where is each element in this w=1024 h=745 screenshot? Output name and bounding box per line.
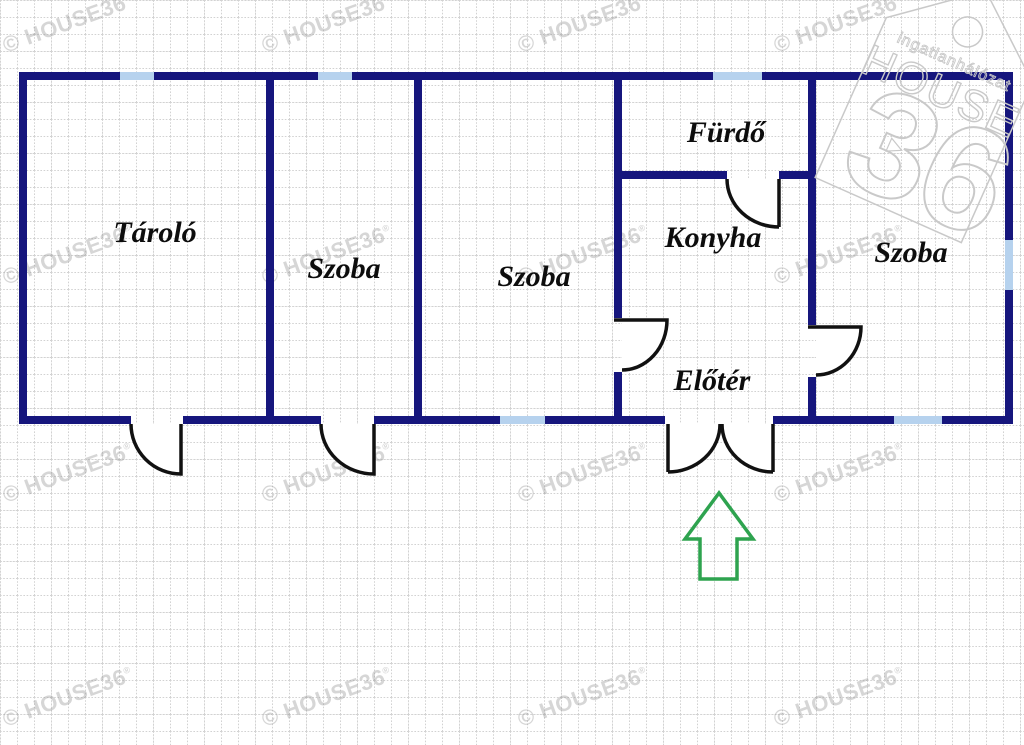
room-label-konyha: Konyha <box>664 221 762 254</box>
floorplan-page: © HOUSE36® <box>0 0 1024 745</box>
wall-top-2 <box>154 72 318 80</box>
wall-left <box>19 72 27 424</box>
wall-top-3 <box>352 72 713 80</box>
room-label-tarolo: Tároló <box>113 216 196 249</box>
window-szoba3-bottom <box>894 416 942 424</box>
wall-furdo-konyha-2 <box>779 171 816 179</box>
wall-bottom-2 <box>183 416 321 424</box>
window-szoba2-bottom <box>500 416 545 424</box>
floorplan-canvas: © HOUSE36® <box>0 0 1024 745</box>
room-label-szoba-2: Szoba <box>497 260 570 293</box>
wall-eloter-szoba3-upper <box>808 72 816 325</box>
window-szoba1-top <box>318 72 352 80</box>
window-furdo-top <box>713 72 762 80</box>
wall-szoba1-szoba2 <box>414 72 422 424</box>
room-label-eloter: Előtér <box>673 364 751 397</box>
wall-bottom-1 <box>19 416 131 424</box>
wall-top-1 <box>19 72 120 80</box>
room-label-szoba-1: Szoba <box>307 252 380 285</box>
room-label-furdo: Fürdő <box>686 116 767 149</box>
wall-bottom-3 <box>374 416 500 424</box>
window-tarolo-top <box>120 72 154 80</box>
wall-bottom-5 <box>773 416 894 424</box>
wall-bottom-6 <box>942 416 1013 424</box>
wall-eloter-szoba3-lower <box>808 377 816 424</box>
wall-furdo-konyha-1 <box>614 171 727 179</box>
wall-tarolo-szoba1 <box>266 72 274 424</box>
wall-szoba2-eloter-lower <box>614 372 622 424</box>
wall-bottom-4 <box>545 416 665 424</box>
wall-right-2 <box>1005 290 1013 424</box>
window-szoba3-right <box>1005 240 1013 290</box>
wall-szoba2-eloter-upper <box>614 72 622 318</box>
